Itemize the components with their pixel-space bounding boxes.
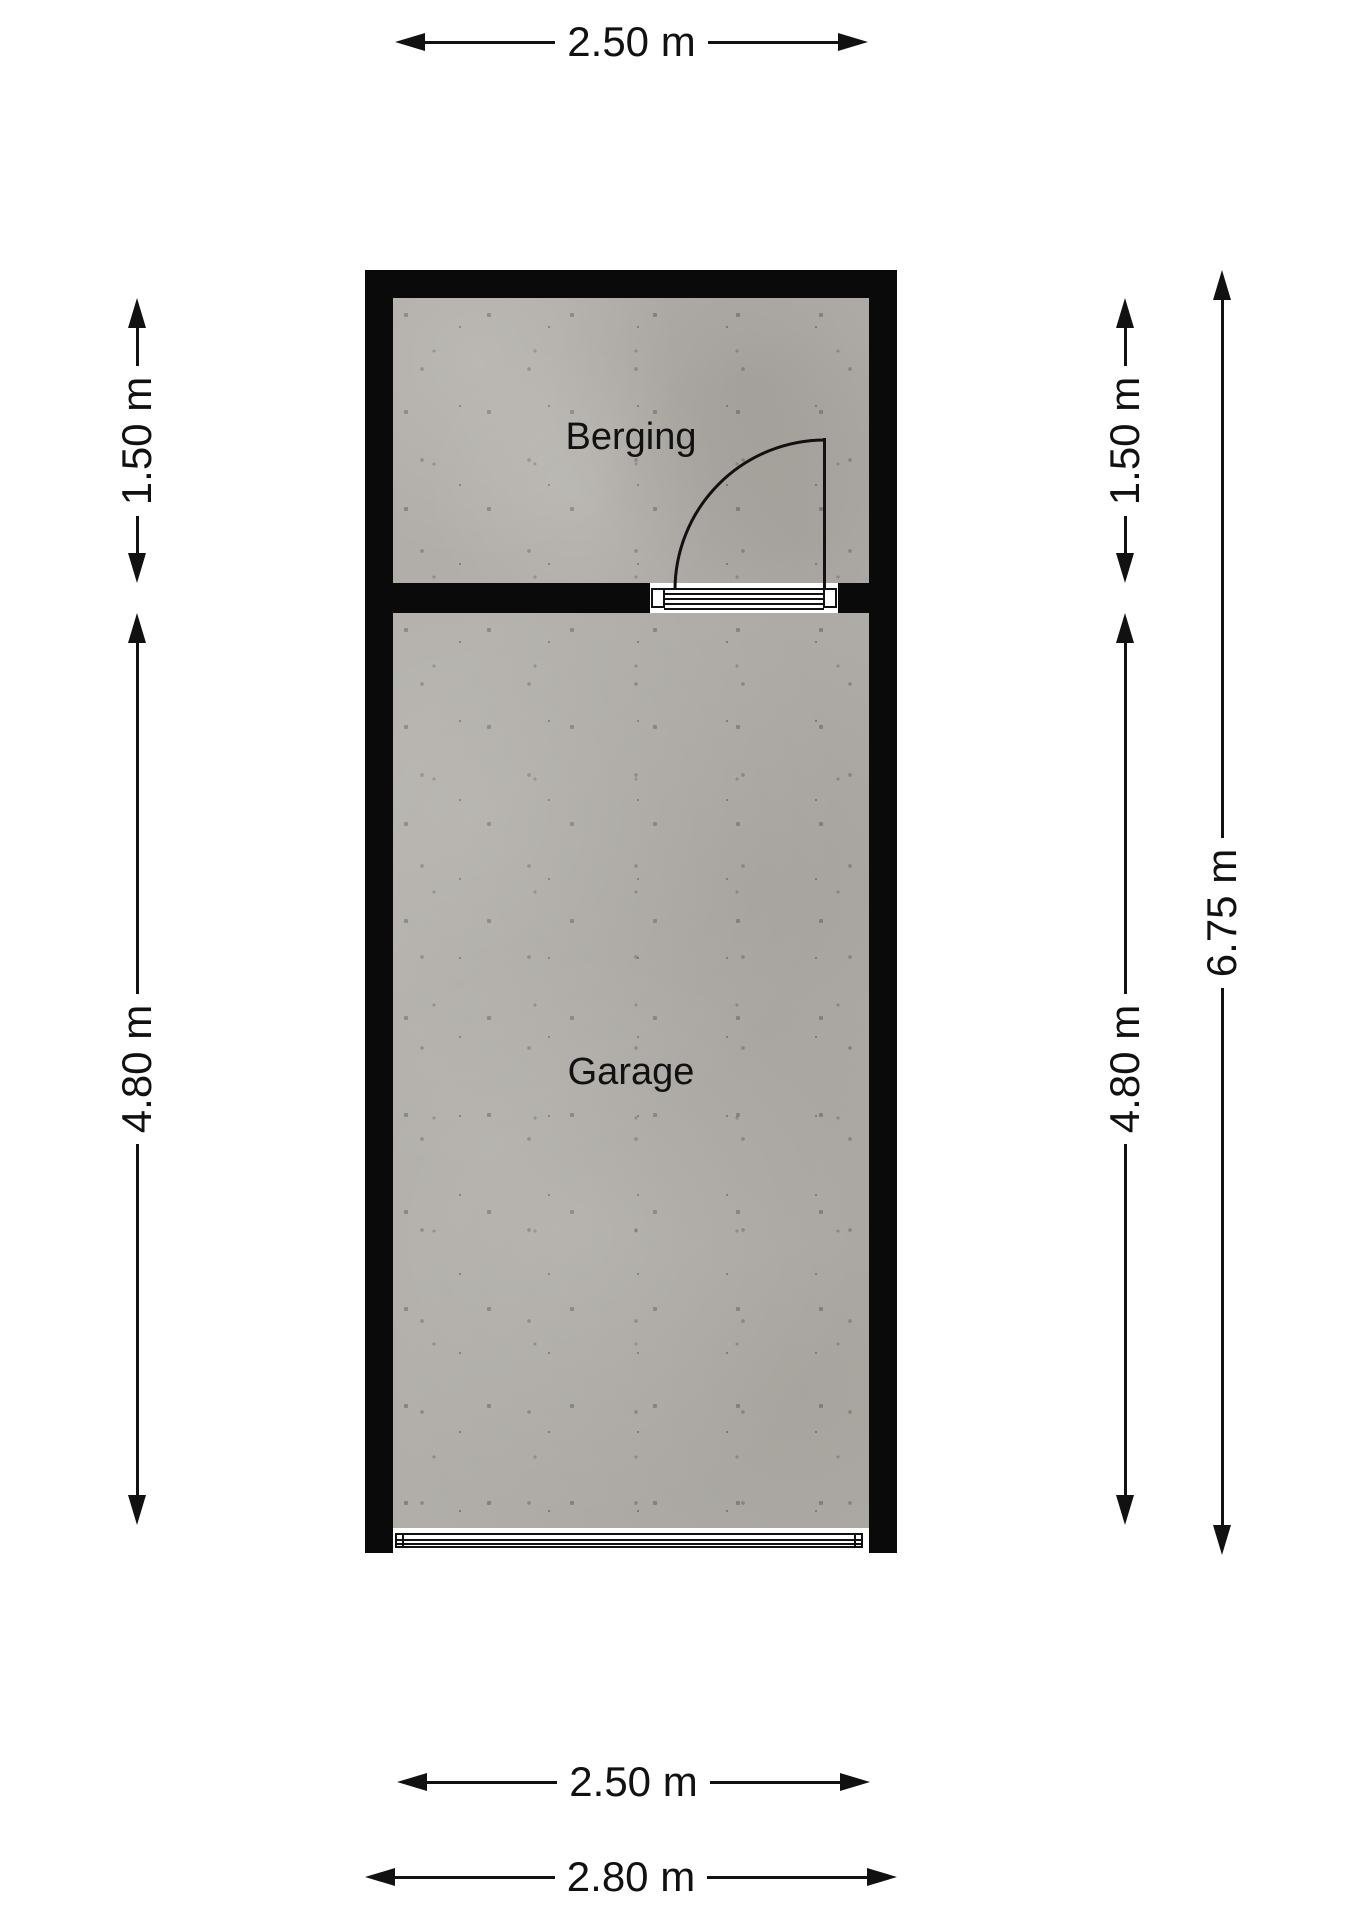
arrowhead-down-icon [1116,553,1134,583]
garage-door-line [397,1543,861,1545]
arrowhead-down-icon [1213,1525,1231,1555]
dimension-garage-height-right: 4.80 m [1100,613,1150,1525]
dimension-line [1221,988,1224,1526]
arrowhead-up-icon [128,613,146,643]
dimension-line [1124,328,1127,366]
dimension-line [427,1781,557,1784]
dimension-line [395,1876,555,1879]
dimension-label: 2.50 m [557,1758,709,1806]
dimension-line [136,1144,139,1495]
arrowhead-up-icon [1213,270,1231,300]
dimension-line [425,41,555,44]
arrowhead-up-icon [1116,613,1134,643]
dimension-bottom-interior-width: 2.50 m [397,1756,870,1808]
arrowhead-up-icon [1116,298,1134,328]
dimension-label: 1.50 m [1101,376,1149,504]
dimension-line [1124,1144,1127,1495]
arrowhead-right-icon [838,33,868,51]
interior-door-jamb-left [651,588,665,608]
dimension-top-interior-width: 2.50 m [395,16,868,68]
garage-door [395,1533,863,1548]
garage-door-line [397,1539,861,1541]
floor-plan: Berging Garage 2.50 m 1.50 m 4.80 m 1.50… [0,0,1358,1920]
dimension-bottom-exterior-width: 2.80 m [365,1851,897,1903]
arrowhead-down-icon [128,1495,146,1525]
dimension-garage-height-left: 4.80 m [112,613,162,1525]
dimension-label: 2.80 m [555,1853,707,1901]
dimension-label: 4.80 m [1101,1005,1149,1133]
dimension-label: 2.50 m [555,18,707,66]
arrowhead-up-icon [128,298,146,328]
room-label-berging: Berging [393,415,869,459]
arrowhead-left-icon [397,1773,427,1791]
dimension-line [1124,516,1127,554]
arrowhead-right-icon [840,1773,870,1791]
dimension-line [1221,300,1224,838]
dimension-line [1124,643,1127,994]
dimension-line [136,643,139,994]
dimension-total-height-right: 6.75 m [1197,270,1247,1555]
dimension-label: 6.75 m [1198,848,1246,976]
room-label-garage: Garage [393,1050,869,1094]
dimension-berging-height-right: 1.50 m [1100,298,1150,583]
garage-door-end-tick-left [402,1533,404,1548]
dimension-label: 1.50 m [113,376,161,504]
dimension-berging-height-left: 1.50 m [112,298,162,583]
dimension-line [136,516,139,554]
arrowhead-right-icon [867,1868,897,1886]
arrowhead-left-icon [395,33,425,51]
dimension-line [707,1876,867,1879]
garage-door-end-tick-right [854,1533,856,1548]
arrowhead-down-icon [1116,1495,1134,1525]
dimension-line [710,1781,840,1784]
arrowhead-left-icon [365,1868,395,1886]
dimension-label: 4.80 m [113,1005,161,1133]
dimension-line [136,328,139,366]
dimension-line [708,41,838,44]
arrowhead-down-icon [128,553,146,583]
